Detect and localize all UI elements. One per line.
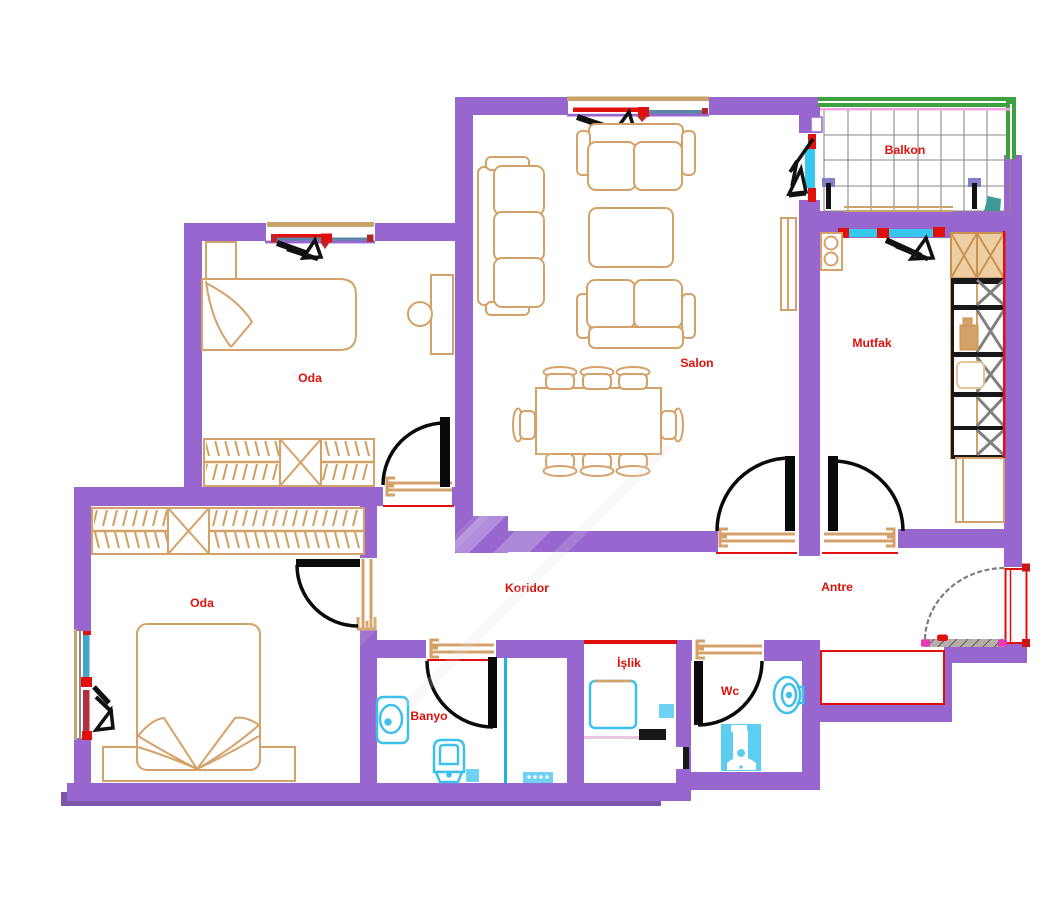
svg-text:Balkon: Balkon [885,143,926,157]
svg-text:Oda: Oda [190,596,214,610]
svg-text:Oda: Oda [298,371,322,385]
svg-text:Mutfak: Mutfak [852,336,891,350]
svg-text:Salon: Salon [680,356,713,370]
svg-text:Banyo: Banyo [410,709,447,723]
svg-text:Antre: Antre [821,580,853,594]
svg-text:İşlik: İşlik [617,655,641,670]
svg-text:Wc: Wc [721,684,740,698]
